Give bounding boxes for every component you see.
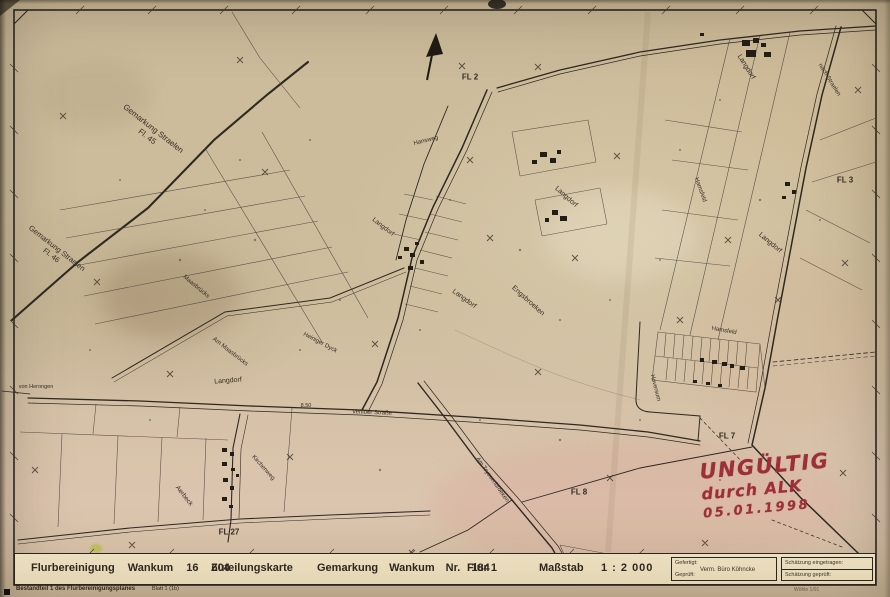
title-block: Flurbereinigung Wankum 16 604 Zuteilungs…	[14, 553, 876, 585]
title-massstab-value: 1 : 2 000	[601, 554, 653, 584]
schaetzung-eingetragen: Schätzung eingetragen:	[785, 561, 843, 567]
footer-blatt: Blatt 1 (1b)	[152, 586, 179, 592]
label-fl7: FL 7	[719, 432, 735, 441]
gefertigt-box: Gefertigt: Verm. Büro Köhncke Geprüft:	[671, 557, 777, 581]
label-road-width: 8.50	[301, 403, 312, 409]
gefertigt-value: Verm. Büro Köhncke	[700, 567, 755, 573]
form-note: Wöhle 1/91	[794, 587, 819, 593]
label-fl27: FL 27	[219, 528, 240, 537]
footer-bestandteil: Bestandteil 1 des Flurbereinigungsplanes	[16, 586, 135, 592]
map-sheet: Gemarkung StraelenFl. 45 Gemarkung Strae…	[0, 0, 890, 597]
title-flurbereinigung: Flurbereinigung Wankum 16 604	[31, 554, 230, 584]
schaetzung-box: Schätzung eingetragen: Schätzung geprüft…	[781, 557, 873, 581]
gefertigt-label: Gefertigt:	[675, 561, 698, 567]
label-fl3: FL 3	[837, 176, 853, 185]
label-fl2: FL 2	[462, 73, 478, 82]
title-gemarkung: Gemarkung Wankum Nr. 184	[317, 554, 490, 584]
buildings	[222, 33, 796, 508]
north-arrow-icon	[426, 33, 443, 80]
title-massstab-label: Maßstab	[539, 554, 584, 584]
title-zuteilungskarte: Zuteilungskarte	[211, 554, 293, 584]
invalid-stamp: UNGÜLTIG durch ALK 05.01.1998	[699, 448, 834, 521]
schaetzung-geprueft: Schätzung geprüft:	[785, 573, 831, 579]
schaetzung-divider	[782, 569, 872, 570]
label-fl8: FL 8	[571, 488, 587, 497]
title-flur: Flur 1	[467, 554, 497, 584]
geprueft-label: Geprüft:	[675, 573, 695, 579]
label-von-herongen: von Herongen	[19, 384, 54, 390]
